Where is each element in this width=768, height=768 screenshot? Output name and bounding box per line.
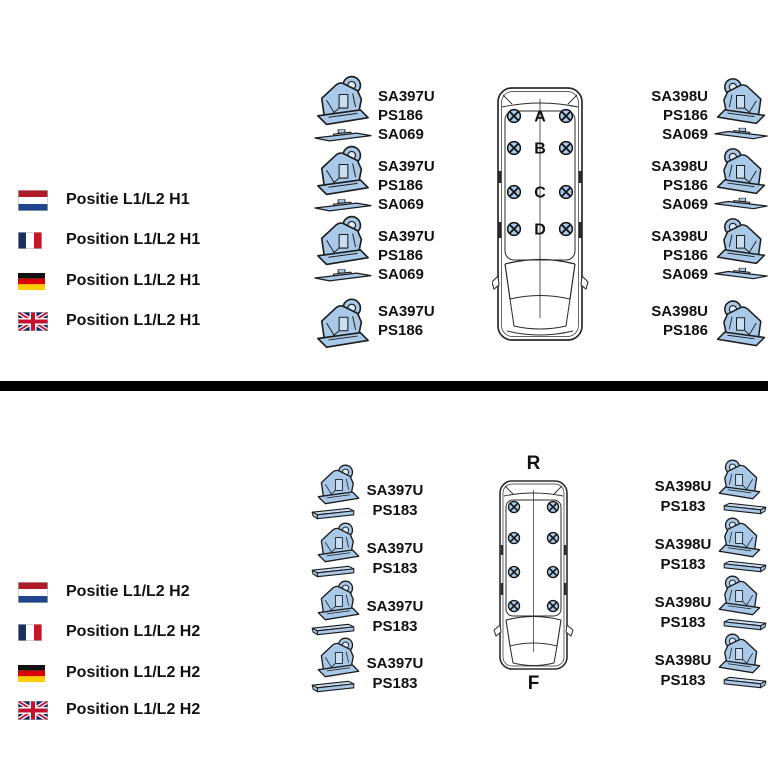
part-number: PS186 [378,106,435,125]
legend-row-gb-h1: Position L1/L2 H1 [18,301,200,341]
united-kingdom-flag-icon [18,701,50,720]
mounting-point-icon [508,566,519,577]
position-letter-c: C [534,185,546,202]
legend-row-nl-h1: Positie L1/L2 H1 [18,180,190,220]
part-number: SA397U [378,227,435,246]
mounting-point-icon [508,501,519,512]
part-number: PS186 [642,176,708,195]
fitting-instruction-page: Positie L1/L2 H1 Position L1/L2 H1 Posit… [0,0,768,768]
legend-label: Positie L1/L2 H1 [66,191,190,209]
legend-label: Position L1/L2 H2 [66,623,200,641]
mounting-point-icon [508,186,521,199]
mounting-point-icon [560,186,573,199]
van-rear-label: R [492,453,575,475]
van-top-view-diagram-h1: A B C D [492,86,590,342]
part-number: SA398U [642,227,708,246]
part-numbers: SA398U PS183 [652,477,714,517]
roof-clamp-with-rail-icon [714,215,768,288]
part-number: PS183 [364,559,426,579]
legend-row-fr-h1: Position L1/L2 H1 [18,220,200,260]
part-number: SA397U [364,539,426,559]
part-number: PS183 [652,613,714,633]
position-letter-d: D [534,222,546,239]
part-row: SA397U PS183 [310,580,426,642]
mounting-point-icon [508,223,521,236]
part-row: SA398U PS183 [652,633,768,695]
part-number: PS183 [364,501,426,521]
part-numbers: SA398U PS183 [652,651,714,691]
legend-label: Position L1/L2 H1 [66,312,200,330]
netherlands-flag-icon [18,190,50,211]
van-front-label: F [492,673,575,695]
part-numbers: SA397U PS183 [364,654,426,694]
section-divider [0,381,768,391]
part-number: PS183 [364,617,426,637]
roof-clamp-with-rail-icon [714,75,768,148]
roof-clamp-icon [714,290,768,363]
roof-clamp-icon [314,290,372,363]
mounting-point-icon [560,110,573,123]
part-row: SA398U PS186 SA069 [642,215,768,288]
mounting-point-icon [547,532,558,543]
germany-flag-icon [18,665,50,682]
part-number: SA069 [642,265,708,284]
part-number: PS186 [378,321,435,340]
legend-label: Position L1/L2 H1 [66,272,200,290]
part-row: SA397U PS186 SA069 [314,145,435,218]
position-letter-b: B [534,141,546,158]
part-row: SA398U PS183 [652,517,768,579]
roof-clamp-with-bar-icon [310,580,360,642]
mounting-point-icon [508,532,519,543]
part-number: SA398U [642,87,708,106]
roof-clamp-with-rail-icon [314,75,372,148]
part-numbers: SA397U PS183 [364,539,426,579]
part-number: SA398U [642,157,708,176]
mounting-point-icon [508,142,521,155]
part-number: PS183 [652,497,714,517]
part-numbers: SA398U PS183 [652,593,714,633]
part-row: SA397U PS186 SA069 [314,215,435,288]
part-row: SA397U PS186 [314,290,435,363]
part-number: PS183 [652,671,714,691]
part-number: SA398U [642,302,708,321]
part-numbers: SA398U PS186 SA069 [642,87,708,144]
legend-label: Positie L1/L2 H2 [66,583,190,601]
part-row: SA398U PS183 [652,575,768,637]
part-number: SA398U [652,593,714,613]
part-numbers: SA398U PS183 [652,535,714,575]
part-row: SA398U PS186 SA069 [642,145,768,218]
mounting-point-icon [547,600,558,611]
part-number: PS186 [642,106,708,125]
part-number: SA397U [364,654,426,674]
roof-clamp-with-bar-icon [718,633,768,695]
mounting-point-icon [508,110,521,123]
roof-clamp-with-rail-icon [314,145,372,218]
part-number: SA397U [378,302,435,321]
part-numbers: SA397U PS186 SA069 [378,227,435,284]
roof-clamp-with-bar-icon [310,522,360,584]
netherlands-flag-icon [18,582,50,603]
united-kingdom-flag-icon [18,312,50,331]
part-number: PS183 [652,555,714,575]
part-number: SA398U [652,477,714,497]
part-numbers: SA397U PS183 [364,481,426,521]
part-number: SA398U [652,651,714,671]
roof-clamp-with-bar-icon [310,637,360,699]
part-number: SA069 [378,195,435,214]
van-top-view-diagram-h2 [492,479,575,671]
mounting-point-icon [547,566,558,577]
part-number: SA397U [364,597,426,617]
mounting-point-icon [547,501,558,512]
germany-flag-icon [18,273,50,290]
legend-row-gb-h2: Position L1/L2 H2 [18,690,200,730]
legend-label: Position L1/L2 H2 [66,664,200,682]
roof-clamp-with-bar-icon [718,517,768,579]
legend-row-de-h2: Position L1/L2 H2 [18,653,200,693]
part-number: PS186 [642,321,708,340]
part-numbers: SA397U PS186 SA069 [378,157,435,214]
part-row: SA398U PS186 SA069 [642,75,768,148]
position-letter-a: A [534,109,546,126]
france-flag-icon [18,232,50,249]
part-numbers: SA398U PS186 SA069 [642,157,708,214]
part-numbers: SA397U PS186 [378,302,435,340]
legend-row-fr-h2: Position L1/L2 H2 [18,612,200,652]
part-numbers: SA397U PS186 SA069 [378,87,435,144]
part-number: SA397U [378,157,435,176]
mounting-point-icon [560,142,573,155]
part-number: SA397U [364,481,426,501]
roof-clamp-with-bar-icon [310,464,360,526]
part-number: SA069 [642,195,708,214]
legend-row-nl-h2: Positie L1/L2 H2 [18,572,190,612]
france-flag-icon [18,624,50,641]
part-number: PS186 [642,246,708,265]
part-numbers: SA398U PS186 SA069 [642,227,708,284]
part-number: PS186 [378,176,435,195]
part-number: SA397U [378,87,435,106]
part-number: PS186 [378,246,435,265]
mounting-point-icon [560,223,573,236]
part-row: SA398U PS183 [652,459,768,521]
part-number: PS183 [364,674,426,694]
mounting-point-icon [508,600,519,611]
roof-clamp-with-bar-icon [718,575,768,637]
part-number: SA069 [642,125,708,144]
part-row: SA397U PS183 [310,464,426,526]
legend-label: Position L1/L2 H1 [66,231,200,249]
part-number: SA069 [378,265,435,284]
part-row: SA397U PS183 [310,637,426,699]
part-row: SA398U PS186 [642,290,768,363]
part-number: SA069 [378,125,435,144]
legend-label: Position L1/L2 H2 [66,701,200,719]
roof-clamp-with-rail-icon [314,215,372,288]
part-row: SA397U PS186 SA069 [314,75,435,148]
part-row: SA397U PS183 [310,522,426,584]
legend-row-de-h1: Position L1/L2 H1 [18,261,200,301]
roof-clamp-with-rail-icon [714,145,768,218]
part-numbers: SA397U PS183 [364,597,426,637]
roof-clamp-with-bar-icon [718,459,768,521]
part-number: SA398U [652,535,714,555]
part-numbers: SA398U PS186 [642,302,708,340]
